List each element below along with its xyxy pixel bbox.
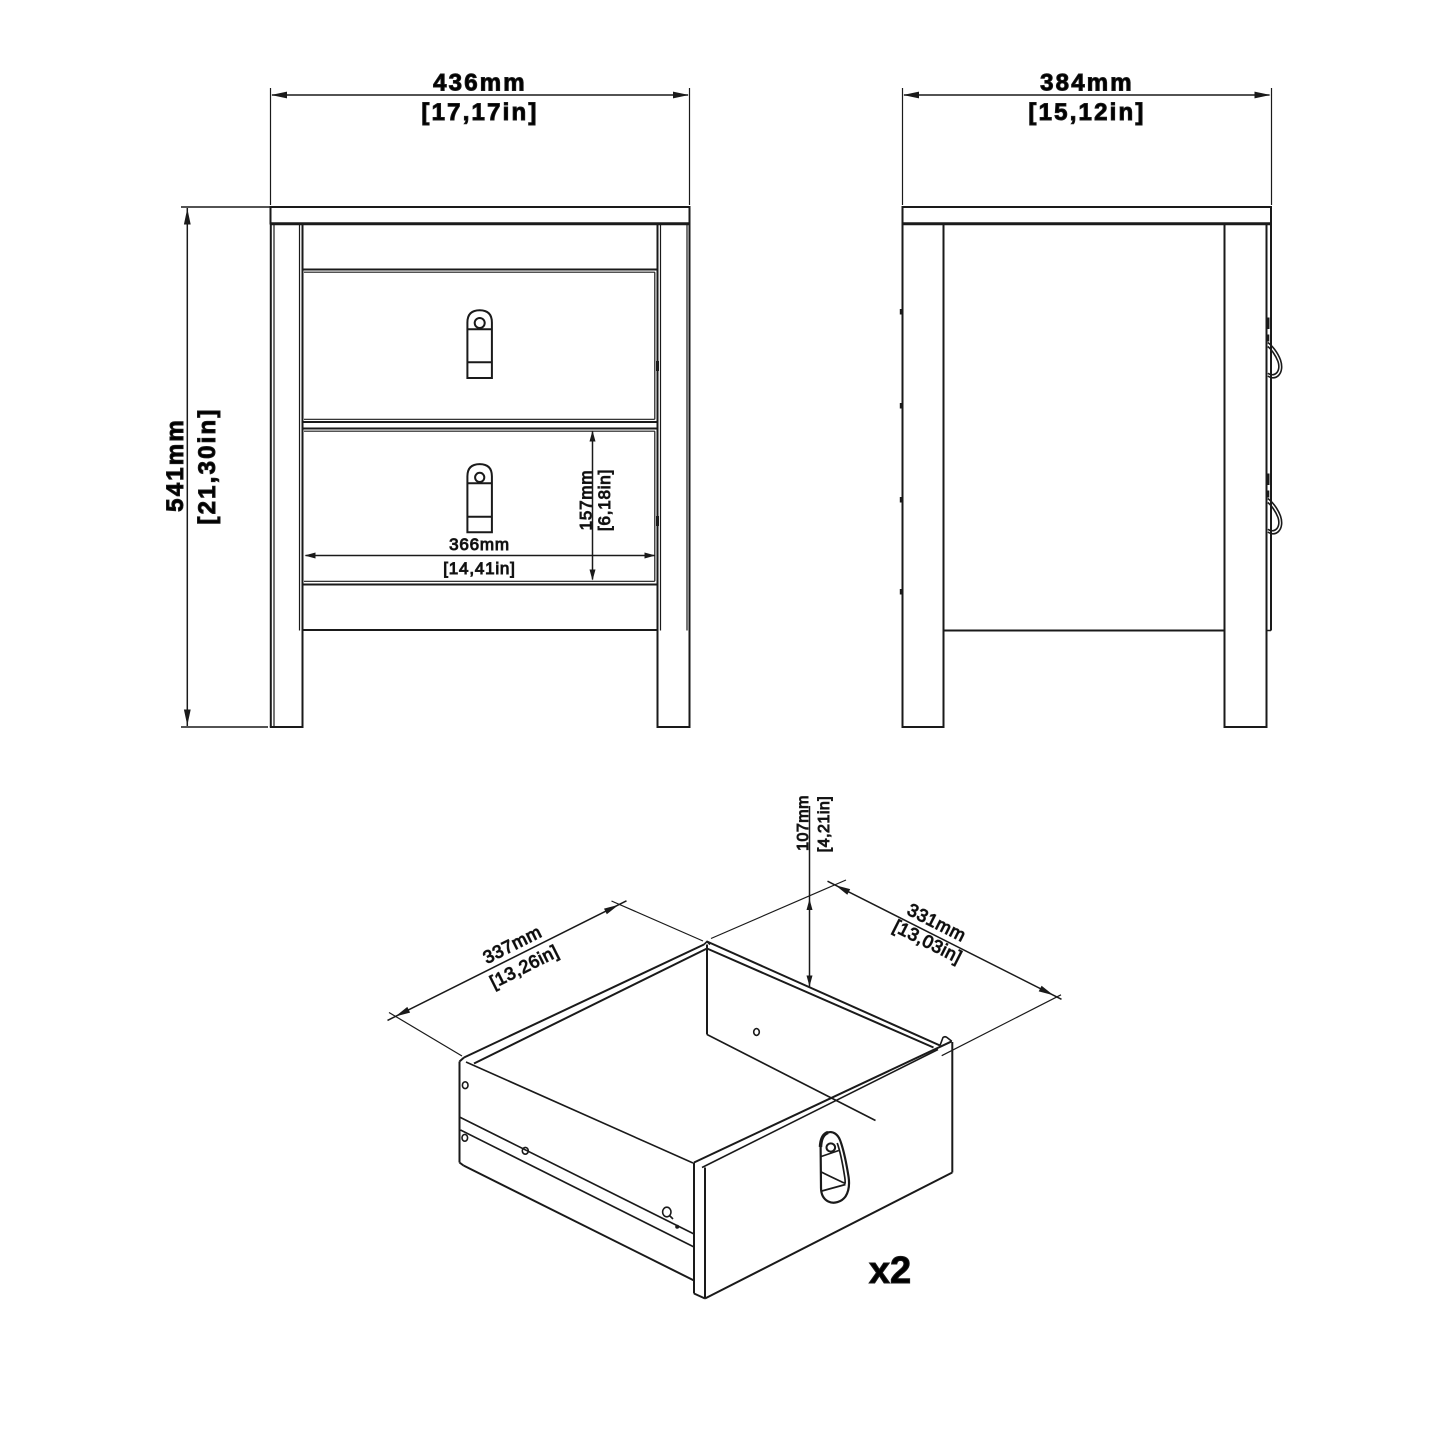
- svg-text:541mm: 541mm: [162, 418, 189, 512]
- svg-text:[15,12in]: [15,12in]: [1028, 99, 1145, 126]
- svg-text:[4,21in]: [4,21in]: [816, 796, 833, 852]
- svg-text:157mm: 157mm: [577, 470, 596, 531]
- svg-text:[17,17in]: [17,17in]: [421, 99, 538, 126]
- svg-text:[6,18in]: [6,18in]: [595, 469, 614, 531]
- svg-text:366mm: 366mm: [449, 535, 510, 554]
- svg-text:107mm: 107mm: [795, 795, 812, 851]
- svg-text:x2: x2: [869, 1250, 911, 1292]
- svg-text:[21,30in]: [21,30in]: [194, 407, 221, 524]
- svg-text:[14,41in]: [14,41in]: [443, 559, 515, 578]
- svg-text:384mm: 384mm: [1040, 70, 1134, 97]
- svg-text:436mm: 436mm: [433, 70, 527, 97]
